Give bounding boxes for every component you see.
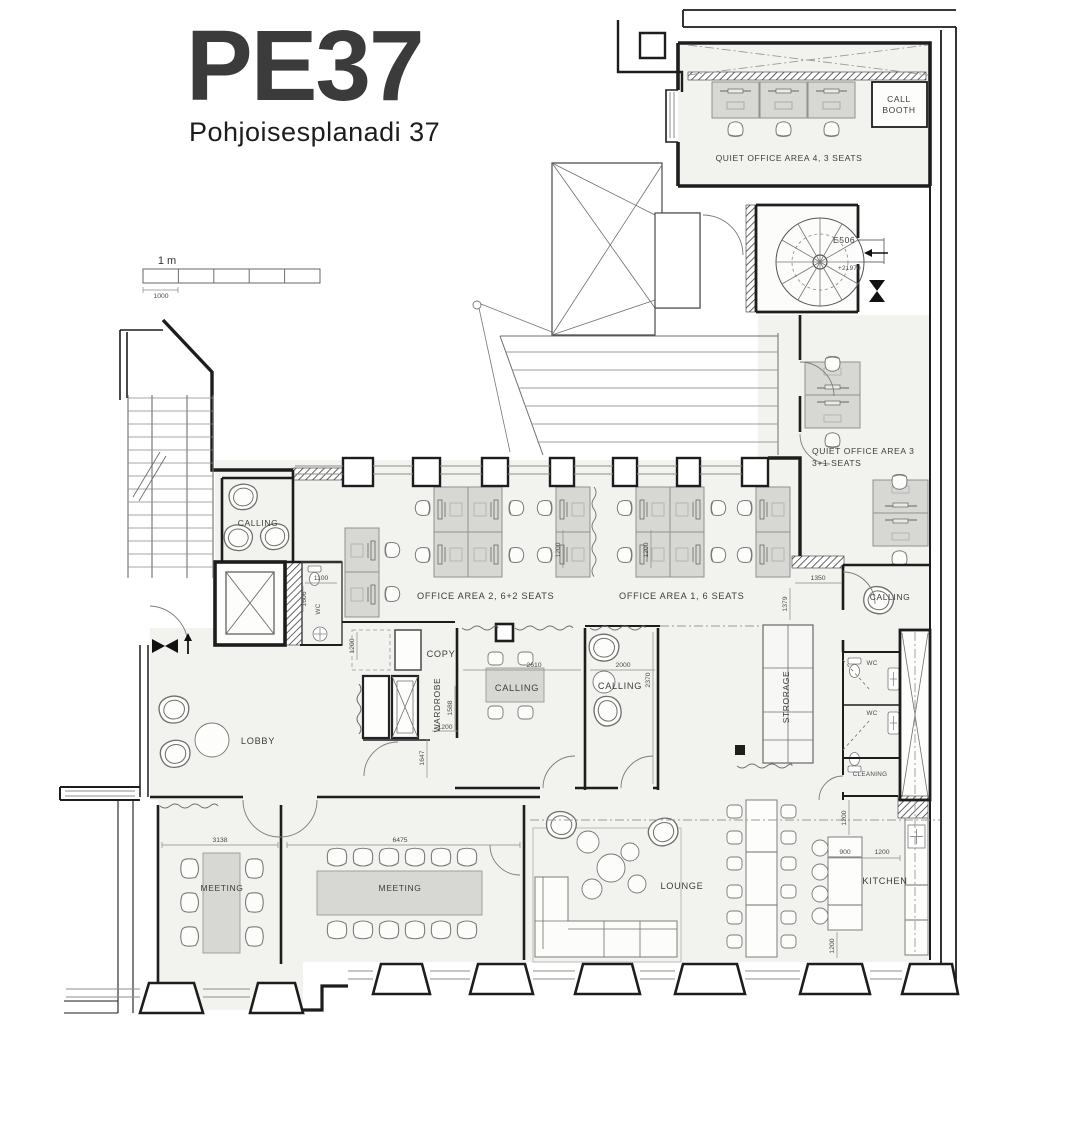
dim-wc-nw-w: 1100 <box>314 575 329 582</box>
dim-wc-nw-d: 1606 <box>301 591 308 606</box>
dim-kitchen-bottom: 1200 <box>829 938 836 953</box>
scale-bar-dim: 1000 <box>153 293 168 300</box>
dim-kitchen-top: 1200 <box>841 810 848 825</box>
room-label-office-area-2: OFFICE AREA 2, 6+2 SEATS <box>417 591 554 601</box>
dim-calling-lounge-w: 2000 <box>615 662 630 669</box>
skylight <box>552 163 743 335</box>
room-label-quiet-office-3-1: QUIET OFFICE AREA 3 <box>812 446 914 456</box>
room-label-calling-nw: CALLING <box>238 518 279 528</box>
dim-pod-b: 1200 <box>555 542 562 557</box>
dim-calling-lounge-d: 2370 <box>645 672 652 687</box>
office-area-1-desks <box>617 487 790 577</box>
room-label-calling-mid-table: CALLING <box>495 683 539 693</box>
dim-copy-aisle: 1200 <box>349 638 356 653</box>
scale-bar: 1 m 1000 <box>143 255 320 300</box>
column <box>496 624 513 641</box>
room-label-lounge: LOUNGE <box>660 881 703 891</box>
room-label-calling-mid-lounge: CALLING <box>598 681 642 691</box>
room-label-wc-e2: WC <box>866 710 877 717</box>
room-label-meeting-large: MEETING <box>379 883 422 893</box>
room-label-call-booth-1: CALL <box>887 94 911 104</box>
floor-plan-page: 1 m 1000 QUIET OFFICE AREA 4, 3 SEATS CA… <box>0 0 1082 1127</box>
page-subtitle: Pohjoisesplanadi 37 <box>189 117 440 147</box>
room-label-calling-e: CALLING <box>870 592 911 602</box>
scale-bar-label: 1 m <box>158 255 176 267</box>
meeting-small-furniture <box>181 853 264 953</box>
floor-plan: 1 m 1000 QUIET OFFICE AREA 4, 3 SEATS CA… <box>0 0 1082 1127</box>
dim-office-end-w: 1350 <box>810 575 825 582</box>
room-label-lobby: LOBBY <box>241 736 275 746</box>
room-label-storage: STRORAGE <box>781 671 791 724</box>
roof-and-skylight <box>473 163 778 455</box>
dim-kitchen-gap: 900 <box>839 849 851 856</box>
room-label-quiet-office-3-2: 3+1 SEATS <box>812 458 861 468</box>
dim-lobby-clear: 1647 <box>419 750 426 765</box>
quiet-office-4-desks <box>712 82 855 137</box>
room-label-wc-e1: WC <box>866 660 877 667</box>
stair-id: E506 <box>833 235 855 245</box>
dim-calling-table-w: 2610 <box>526 662 541 669</box>
room-label-call-booth-2: BOOTH <box>882 105 915 115</box>
room-label-kitchen: KITCHEN <box>862 876 907 886</box>
room-label-office-area-1: OFFICE AREA 1, 6 SEATS <box>619 591 745 601</box>
page-title: PE37 <box>186 10 423 122</box>
dim-office-end-d: 1379 <box>782 596 789 611</box>
dim-meeting-small-w: 3138 <box>212 837 227 844</box>
stair-level: +21970 <box>838 265 861 272</box>
stairs-northwest <box>128 395 213 578</box>
dim-kitchen-aisle: 1200 <box>874 849 889 856</box>
room-label-cleaning: CLEANING <box>853 771 888 778</box>
dim-pod-c: 1200 <box>643 542 650 557</box>
room-label-quiet-office-4: QUIET OFFICE AREA 4, 3 SEATS <box>716 153 863 163</box>
dim-wardrobe-d: 1588 <box>447 700 454 715</box>
room-label-meeting-small: MEETING <box>201 883 244 893</box>
dim-wardrobe-w: 1200 <box>437 724 452 731</box>
guy-wire <box>473 301 552 452</box>
spiral-staircase <box>776 218 864 306</box>
room-label-wc-nw: WC <box>315 603 322 614</box>
dim-meeting-large-w: 6475 <box>392 837 407 844</box>
room-label-copy: COPY <box>427 649 456 659</box>
header: PE37 Pohjoisesplanadi 37 <box>186 10 440 147</box>
